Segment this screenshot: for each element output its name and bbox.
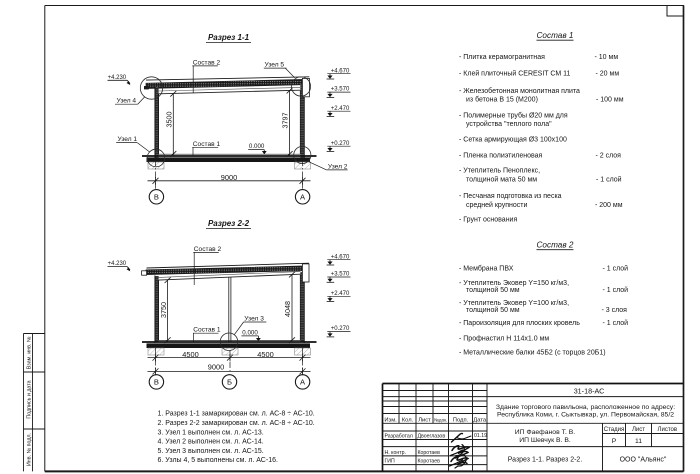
svg-text:Узел 2: Узел 2 xyxy=(328,164,348,171)
svg-text:- Мембрана ПВХ: - Мембрана ПВХ xyxy=(459,265,514,273)
svg-text:- Железобетонная монолитная п: - Железобетонная монолитная плита xyxy=(459,87,580,95)
svg-text:- Утеплитель Эковер Y=100 кг/м: - Утеплитель Эковер Y=100 кг/м3, xyxy=(459,300,569,307)
svg-text:11: 11 xyxy=(635,438,642,445)
svg-text:Состав 2: Состав 2 xyxy=(193,59,221,66)
svg-text:ИП Шевчук В. В.: ИП Шевчук В. В. xyxy=(519,437,571,444)
svg-text:Лист: Лист xyxy=(632,427,645,433)
svg-text:устройства "теплого пола": устройства "теплого пола" xyxy=(466,120,552,128)
svg-text:Состав 1: Состав 1 xyxy=(193,327,221,334)
svg-text:- 1 слой: - 1 слой xyxy=(603,265,629,273)
svg-text:- Утеплитель Пеноплекс,: - Утеплитель Пеноплекс, xyxy=(459,167,540,174)
svg-text:- 100 мм: - 100 мм xyxy=(596,97,624,104)
svg-text:Лист: Лист xyxy=(418,417,431,423)
svg-text:Подпись и дата: Подпись и дата xyxy=(27,380,33,418)
svg-text:Инв. № подл.: Инв. № подл. xyxy=(27,433,33,466)
svg-text:0.000: 0.000 xyxy=(249,143,265,150)
svg-text:В: В xyxy=(154,193,159,202)
svg-text:3750: 3750 xyxy=(159,302,168,318)
svg-text:- 2 слоя: - 2 слоя xyxy=(596,152,622,159)
svg-text:Здание торгового павильона, ра: Здание торгового павильона, расположенно… xyxy=(496,404,675,411)
svg-text:3. Узел 1 выполнен см. л. АС-1: 3. Узел 1 выполнен см. л. АС-13. xyxy=(158,429,264,436)
svg-text:Состав 2: Состав 2 xyxy=(194,246,222,253)
svg-text:Разработал: Разработал xyxy=(385,433,413,439)
svg-text:Узел 5: Узел 5 xyxy=(265,62,285,69)
svg-text:ООО "Альянс": ООО "Альянс" xyxy=(620,457,667,464)
svg-text:толщиной мата 50 мм: толщиной мата 50 мм xyxy=(466,175,537,183)
svg-text:- 3 слоя: - 3 слоя xyxy=(602,307,628,314)
svg-text:01.19: 01.19 xyxy=(474,433,487,439)
svg-text:- Пленка полиэтиленовая: - Пленка полиэтиленовая xyxy=(459,152,543,159)
svg-text:- 10 мм: - 10 мм xyxy=(595,54,619,61)
svg-text:Разрез 2-2: Разрез 2-2 xyxy=(208,219,250,228)
svg-text:- Клей плиточный CERESIT СМ 11: - Клей плиточный CERESIT СМ 11 xyxy=(459,69,571,77)
svg-text:- Полимерные трубы Ø20 мм для: - Полимерные трубы Ø20 мм для xyxy=(459,111,568,119)
svg-text:- Сетка армирующая Ø3 100x100: - Сетка армирующая Ø3 100x100 xyxy=(459,137,567,144)
svg-text:Состав 1: Состав 1 xyxy=(193,141,221,148)
svg-text:ИП Фаефанов Т. В.: ИП Фаефанов Т. В. xyxy=(515,429,576,436)
svg-text:Коротаев: Коротаев xyxy=(418,458,441,464)
svg-text:Узел 1: Узел 1 xyxy=(118,136,138,143)
svg-text:9000: 9000 xyxy=(208,363,224,372)
svg-text:Узел 3: Узел 3 xyxy=(244,316,264,323)
svg-text:4500: 4500 xyxy=(257,350,273,359)
svg-text:- 20 мм: - 20 мм xyxy=(596,70,620,77)
svg-text:31-18-АС: 31-18-АС xyxy=(574,387,605,396)
svg-text:1. Разрез 1-1 замаркирован см.: 1. Разрез 1-1 замаркирован см. л. АС-8 ÷… xyxy=(158,411,315,418)
svg-text:толщиной 50 мм: толщиной 50 мм xyxy=(466,306,520,314)
svg-text:Листов: Листов xyxy=(658,427,678,433)
svg-text:- Пароизоляция для плоских кро: - Пароизоляция для плоских кровель xyxy=(459,320,580,327)
svg-text:- 1 слой: - 1 слой xyxy=(603,319,629,327)
svg-text:Разрез 1-1. Разрез 2-2.: Разрез 1-1. Разрез 2-2. xyxy=(508,457,583,464)
svg-text:- Песчаная подготовка из песка: - Песчаная подготовка из песка xyxy=(459,193,562,200)
svg-text:5. Узел 3 выполнен см. л. АС-1: 5. Узел 3 выполнен см. л. АС-15. xyxy=(158,448,264,455)
svg-text:- Металлические балки 45Б2 (с: - Металлические балки 45Б2 (с торцов 20Б… xyxy=(459,349,606,357)
svg-text:Состав 1: Состав 1 xyxy=(537,31,574,40)
svg-text:- Плитка керамогранитная: - Плитка керамогранитная xyxy=(459,54,545,61)
svg-text:Стадия: Стадия xyxy=(604,427,624,433)
svg-text:Изм.: Изм. xyxy=(384,417,397,423)
svg-text:из бетона В 15 (М200): из бетона В 15 (М200) xyxy=(466,96,538,104)
svg-text:- 1 слой: - 1 слой xyxy=(596,175,622,183)
svg-text:толщиной 50 мм: толщиной 50 мм xyxy=(466,286,520,294)
svg-text:- Грунт основания: - Грунт основания xyxy=(459,217,517,224)
svg-text:Узел 4: Узел 4 xyxy=(117,98,137,105)
svg-text:4. Узел 2 выполнен см. л. АС-1: 4. Узел 2 выполнен см. л. АС-14. xyxy=(158,439,264,446)
svg-text:4500: 4500 xyxy=(182,350,198,359)
svg-text:- Профнастил Н 114x1.0 мм: - Профнастил Н 114x1.0 мм xyxy=(459,336,549,343)
svg-text:- 200 мм: - 200 мм xyxy=(595,202,623,209)
svg-text:Дата: Дата xyxy=(473,417,487,423)
svg-text:Р: Р xyxy=(612,438,617,445)
svg-text:Республика Коми, г. Сыктывкар,: Республика Коми, г. Сыктывкар, ул. Перво… xyxy=(497,410,674,418)
svg-text:Н. контр.: Н. контр. xyxy=(385,450,406,456)
svg-text:Подп.: Подп. xyxy=(453,417,469,423)
svg-text:Б: Б xyxy=(227,378,232,387)
svg-text:9000: 9000 xyxy=(221,173,237,182)
svg-text:№док.: №док. xyxy=(434,418,447,423)
svg-text:3797: 3797 xyxy=(281,113,290,129)
svg-text:- 1 слой: - 1 слой xyxy=(603,286,629,294)
svg-text:Коротаев: Коротаев xyxy=(418,450,441,456)
svg-text:Разрез 1-1: Разрез 1-1 xyxy=(208,33,250,42)
svg-text:Состав 2: Состав 2 xyxy=(537,240,574,249)
svg-text:Двоеглазов: Двоеглазов xyxy=(418,433,446,439)
svg-text:Взам. инв. №: Взам. инв. № xyxy=(27,336,33,369)
svg-text:4048: 4048 xyxy=(283,301,292,317)
svg-text:ГИП: ГИП xyxy=(385,458,396,464)
svg-text:2. Разрез 2-2 замаркирован см.: 2. Разрез 2-2 замаркирован см. л. АС-8 ÷… xyxy=(158,420,315,427)
svg-text:6. Узлы 4, 5 выполнены см. л.: 6. Узлы 4, 5 выполнены см. л. АС-16. xyxy=(158,457,278,464)
svg-text:- Утеплитель Эковер Y=150 кг/м: - Утеплитель Эковер Y=150 кг/м3, xyxy=(459,280,569,287)
svg-text:В: В xyxy=(154,378,159,387)
svg-text:3500: 3500 xyxy=(165,112,174,128)
svg-text:средней крупности: средней крупности xyxy=(466,201,527,209)
svg-text:Кол.: Кол. xyxy=(402,417,414,423)
